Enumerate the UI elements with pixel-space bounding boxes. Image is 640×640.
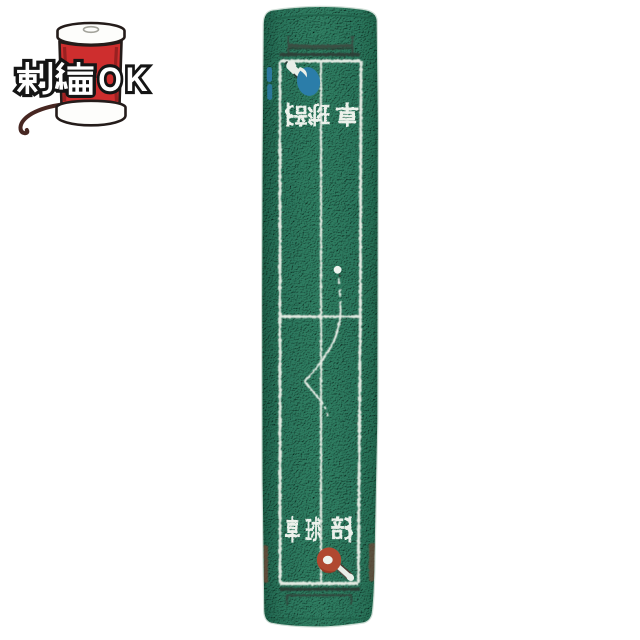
svg-text:OK: OK	[98, 60, 151, 98]
